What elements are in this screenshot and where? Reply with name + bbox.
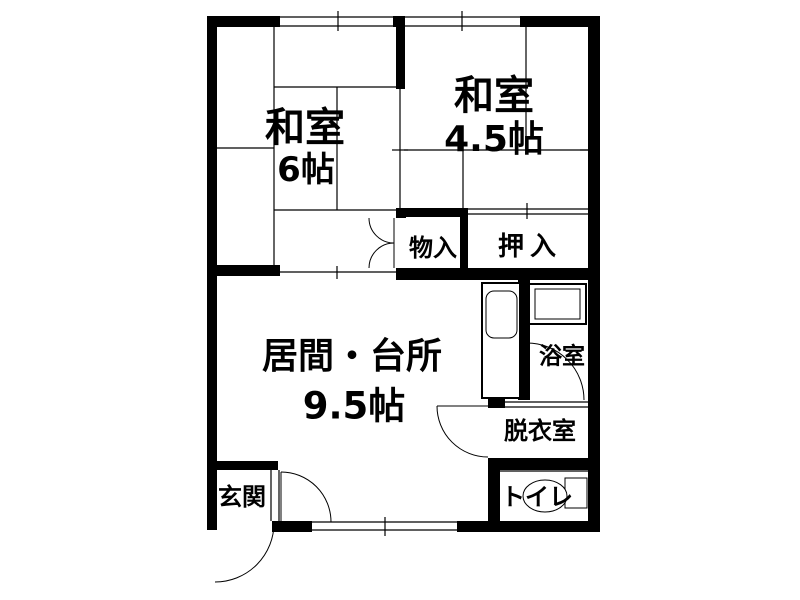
- room-label-living-kitchen-size: 9.5帖: [303, 388, 406, 425]
- room-label-washitsu45-name: 和室: [454, 76, 534, 116]
- wall-storage-closet-divider: [460, 208, 468, 278]
- wall-bottom-right: [457, 521, 600, 532]
- entrance-inner-door: [281, 472, 331, 522]
- room-label-entrance: 玄関: [218, 485, 266, 509]
- room-label-washitsu45-size: 4.5帖: [444, 122, 544, 158]
- wall-top-left: [207, 16, 280, 27]
- room-label-closet: 押入: [498, 234, 562, 260]
- wall-bottom-left: [272, 521, 312, 532]
- room-label-dressing-room: 脱衣室: [504, 419, 576, 443]
- floor-plan-drawing: [0, 0, 800, 600]
- kitchen-sink: [482, 283, 520, 398]
- wall-washitsu6-living: [217, 265, 280, 276]
- wall-left: [207, 16, 217, 530]
- wall-storage-top: [396, 208, 462, 217]
- wall-living-toilet: [488, 458, 500, 528]
- wall-below-closets: [396, 268, 600, 280]
- bathtub: [529, 284, 586, 324]
- floor-plan-canvas: 和室 6帖 和室 4.5帖 居間・台所 9.5帖 物入 押入 浴室 脱衣室 トイ…: [0, 0, 800, 600]
- room-label-living-kitchen-name: 居間・台所: [262, 339, 442, 375]
- walls: [207, 16, 600, 532]
- storage-double-door: [369, 218, 394, 268]
- room-label-storage: 物入: [409, 236, 457, 260]
- room-label-washitsu6-size: 6帖: [277, 153, 335, 187]
- wall-room-partition: [396, 27, 405, 89]
- wall-top-pier: [393, 16, 405, 27]
- dressing-room-door: [437, 406, 488, 457]
- room-label-toilet: トイレ: [501, 485, 573, 509]
- room-label-washitsu6-name: 和室: [265, 108, 345, 148]
- front-door: [215, 523, 274, 582]
- wall-entrance-top: [207, 461, 278, 470]
- room-label-bathroom: 浴室: [539, 346, 585, 369]
- wall-dressing-toilet-divider: [500, 458, 588, 470]
